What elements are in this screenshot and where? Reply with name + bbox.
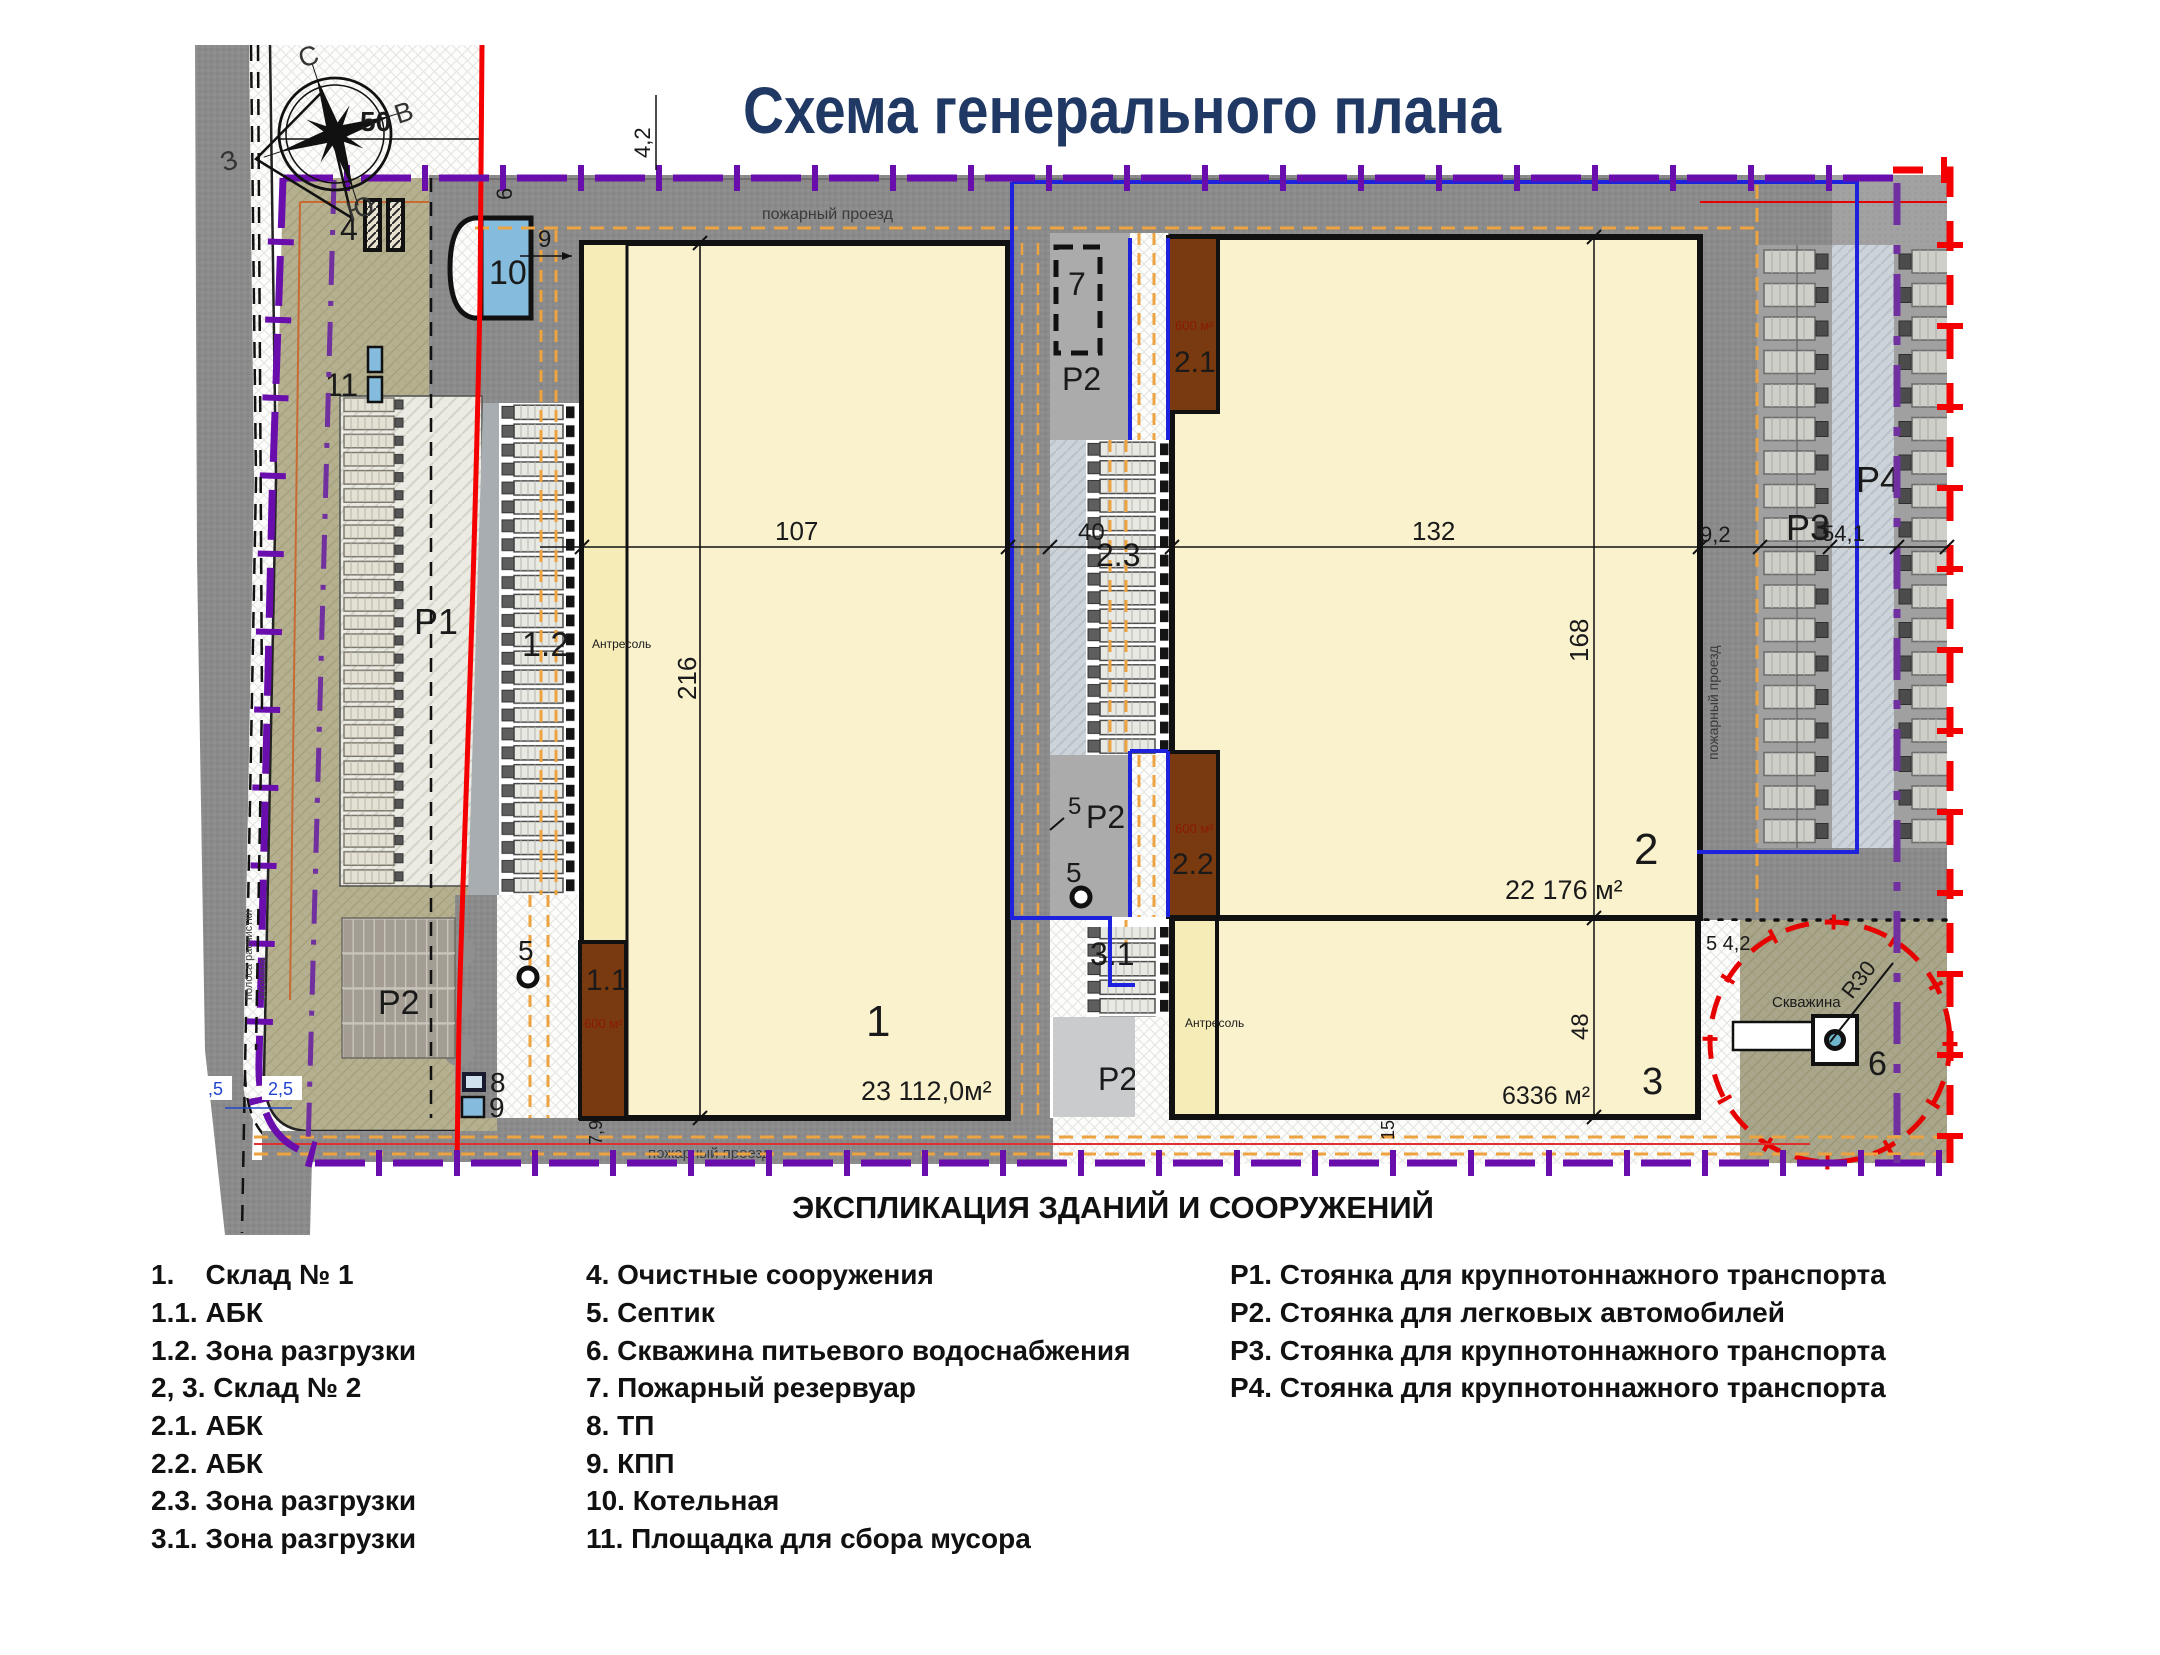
svg-text:9: 9	[538, 226, 551, 253]
svg-text:3.1. Зона разгрузки: 3.1. Зона разгрузки	[151, 1523, 416, 1554]
svg-text:P4: P4	[1856, 459, 1900, 500]
svg-text:6: 6	[1868, 1045, 1887, 1083]
svg-text:216: 216	[672, 657, 702, 700]
svg-text:600 м²: 600 м²	[584, 1016, 623, 1031]
svg-text:4,2: 4,2	[630, 127, 655, 158]
svg-text:600 м²: 600 м²	[1175, 318, 1214, 333]
svg-text:Схема генерального плана: Схема генерального плана	[743, 73, 1502, 147]
svg-text:7. Пожарный резервуар: 7. Пожарный резервуар	[586, 1372, 916, 1403]
svg-text:10. Котельная: 10. Котельная	[586, 1485, 779, 1516]
svg-text:ЭКСПЛИКАЦИЯ ЗДАНИЙ И СООРУЖЕНИ: ЭКСПЛИКАЦИЯ ЗДАНИЙ И СООРУЖЕНИЙ	[792, 1189, 1434, 1225]
svg-text:1.2: 1.2	[522, 626, 569, 664]
svg-text:54,1: 54,1	[1822, 521, 1865, 546]
svg-text:2.2: 2.2	[1172, 848, 1214, 881]
svg-text:Антресоль: Антресоль	[592, 637, 651, 651]
svg-text:,5: ,5	[208, 1079, 223, 1099]
svg-text:9,2: 9,2	[1700, 522, 1731, 547]
svg-text:1.1. АБК: 1.1. АБК	[151, 1297, 264, 1328]
svg-text:P2: P2	[378, 984, 420, 1022]
svg-text:Антресоль: Антресоль	[1185, 1016, 1244, 1030]
svg-text:132: 132	[1412, 516, 1455, 546]
svg-text:P1. Стоянка для крупнотоннажно: P1. Стоянка для крупнотоннажного транспо…	[1230, 1259, 1886, 1290]
svg-text:2,5: 2,5	[268, 1079, 293, 1099]
svg-text:3: 3	[1642, 1061, 1663, 1103]
svg-text:4. Очистные сооружения: 4. Очистные сооружения	[586, 1259, 934, 1290]
svg-text:пожарный проезд: пожарный проезд	[762, 206, 894, 223]
svg-text:5: 5	[1068, 793, 1081, 820]
svg-text:P2: P2	[1098, 1061, 1137, 1097]
svg-text:5 4,2: 5 4,2	[1706, 933, 1750, 955]
svg-text:2: 2	[1634, 825, 1658, 874]
svg-text:P3. Стоянка для крупнотоннажно: P3. Стоянка для крупнотоннажного транспо…	[1230, 1335, 1886, 1366]
svg-text:1.2. Зона разгрузки: 1.2. Зона разгрузки	[151, 1335, 416, 1366]
svg-text:50: 50	[360, 106, 391, 137]
svg-text:7,9: 7,9	[586, 1120, 606, 1145]
svg-text:2.2. АБК: 2.2. АБК	[151, 1448, 264, 1479]
svg-text:2.3. Зона разгрузки: 2.3. Зона разгрузки	[151, 1485, 416, 1516]
svg-text:полоса расчистки: полоса расчистки	[243, 910, 255, 1000]
svg-text:P2: P2	[1086, 799, 1125, 835]
svg-text:9. КПП: 9. КПП	[586, 1448, 674, 1479]
svg-text:Скважина: Скважина	[1772, 994, 1841, 1011]
svg-text:пожарный проезд: пожарный проезд	[648, 1145, 771, 1162]
svg-text:5: 5	[518, 935, 534, 966]
svg-text:15: 15	[1378, 1120, 1398, 1140]
svg-text:48: 48	[1567, 1013, 1594, 1040]
svg-text:6: 6	[492, 188, 517, 200]
svg-text:5: 5	[1066, 857, 1082, 888]
svg-text:1: 1	[866, 997, 890, 1046]
svg-text:6. Скважина питьевого водоснаб: 6. Скважина питьевого водоснабжения	[586, 1335, 1130, 1366]
svg-text:168: 168	[1564, 619, 1594, 662]
svg-text:107: 107	[775, 516, 818, 546]
svg-text:P2: P2	[1062, 361, 1101, 397]
svg-text:9: 9	[489, 1092, 505, 1123]
svg-text:1.1: 1.1	[586, 964, 628, 997]
svg-text:2, 3. Склад № 2: 2, 3. Склад № 2	[151, 1372, 361, 1403]
svg-text:11. Площадка для сбора мусора: 11. Площадка для сбора мусора	[586, 1523, 1031, 1554]
svg-text:P1: P1	[414, 601, 458, 642]
svg-text:1. Склад № 1: 1. Склад № 1	[151, 1259, 354, 1290]
svg-text:600 м²: 600 м²	[1175, 821, 1214, 836]
svg-text:P2. Стоянка для легковых автом: P2. Стоянка для легковых автомобилей	[1230, 1297, 1785, 1328]
svg-text:2.1. АБК: 2.1. АБК	[151, 1410, 264, 1441]
svg-text:3.1: 3.1	[1090, 936, 1134, 972]
svg-text:6336 м²: 6336 м²	[1502, 1082, 1590, 1110]
svg-text:5. Септик: 5. Септик	[586, 1297, 716, 1328]
svg-text:8. ТП: 8. ТП	[586, 1410, 654, 1441]
svg-text:7: 7	[1068, 266, 1086, 302]
svg-text:40: 40	[1078, 519, 1105, 546]
svg-text:10: 10	[489, 254, 527, 292]
svg-text:22 176 м²: 22 176 м²	[1505, 875, 1623, 905]
svg-text:23 112,0м²: 23 112,0м²	[861, 1076, 992, 1106]
svg-text:пожарный проезд: пожарный проезд	[1705, 645, 1721, 760]
svg-text:2.1: 2.1	[1174, 346, 1216, 379]
svg-text:P4. Стоянка для крупнотоннажно: P4. Стоянка для крупнотоннажного транспо…	[1230, 1372, 1886, 1403]
svg-text:обочина: обочина	[257, 957, 269, 1000]
